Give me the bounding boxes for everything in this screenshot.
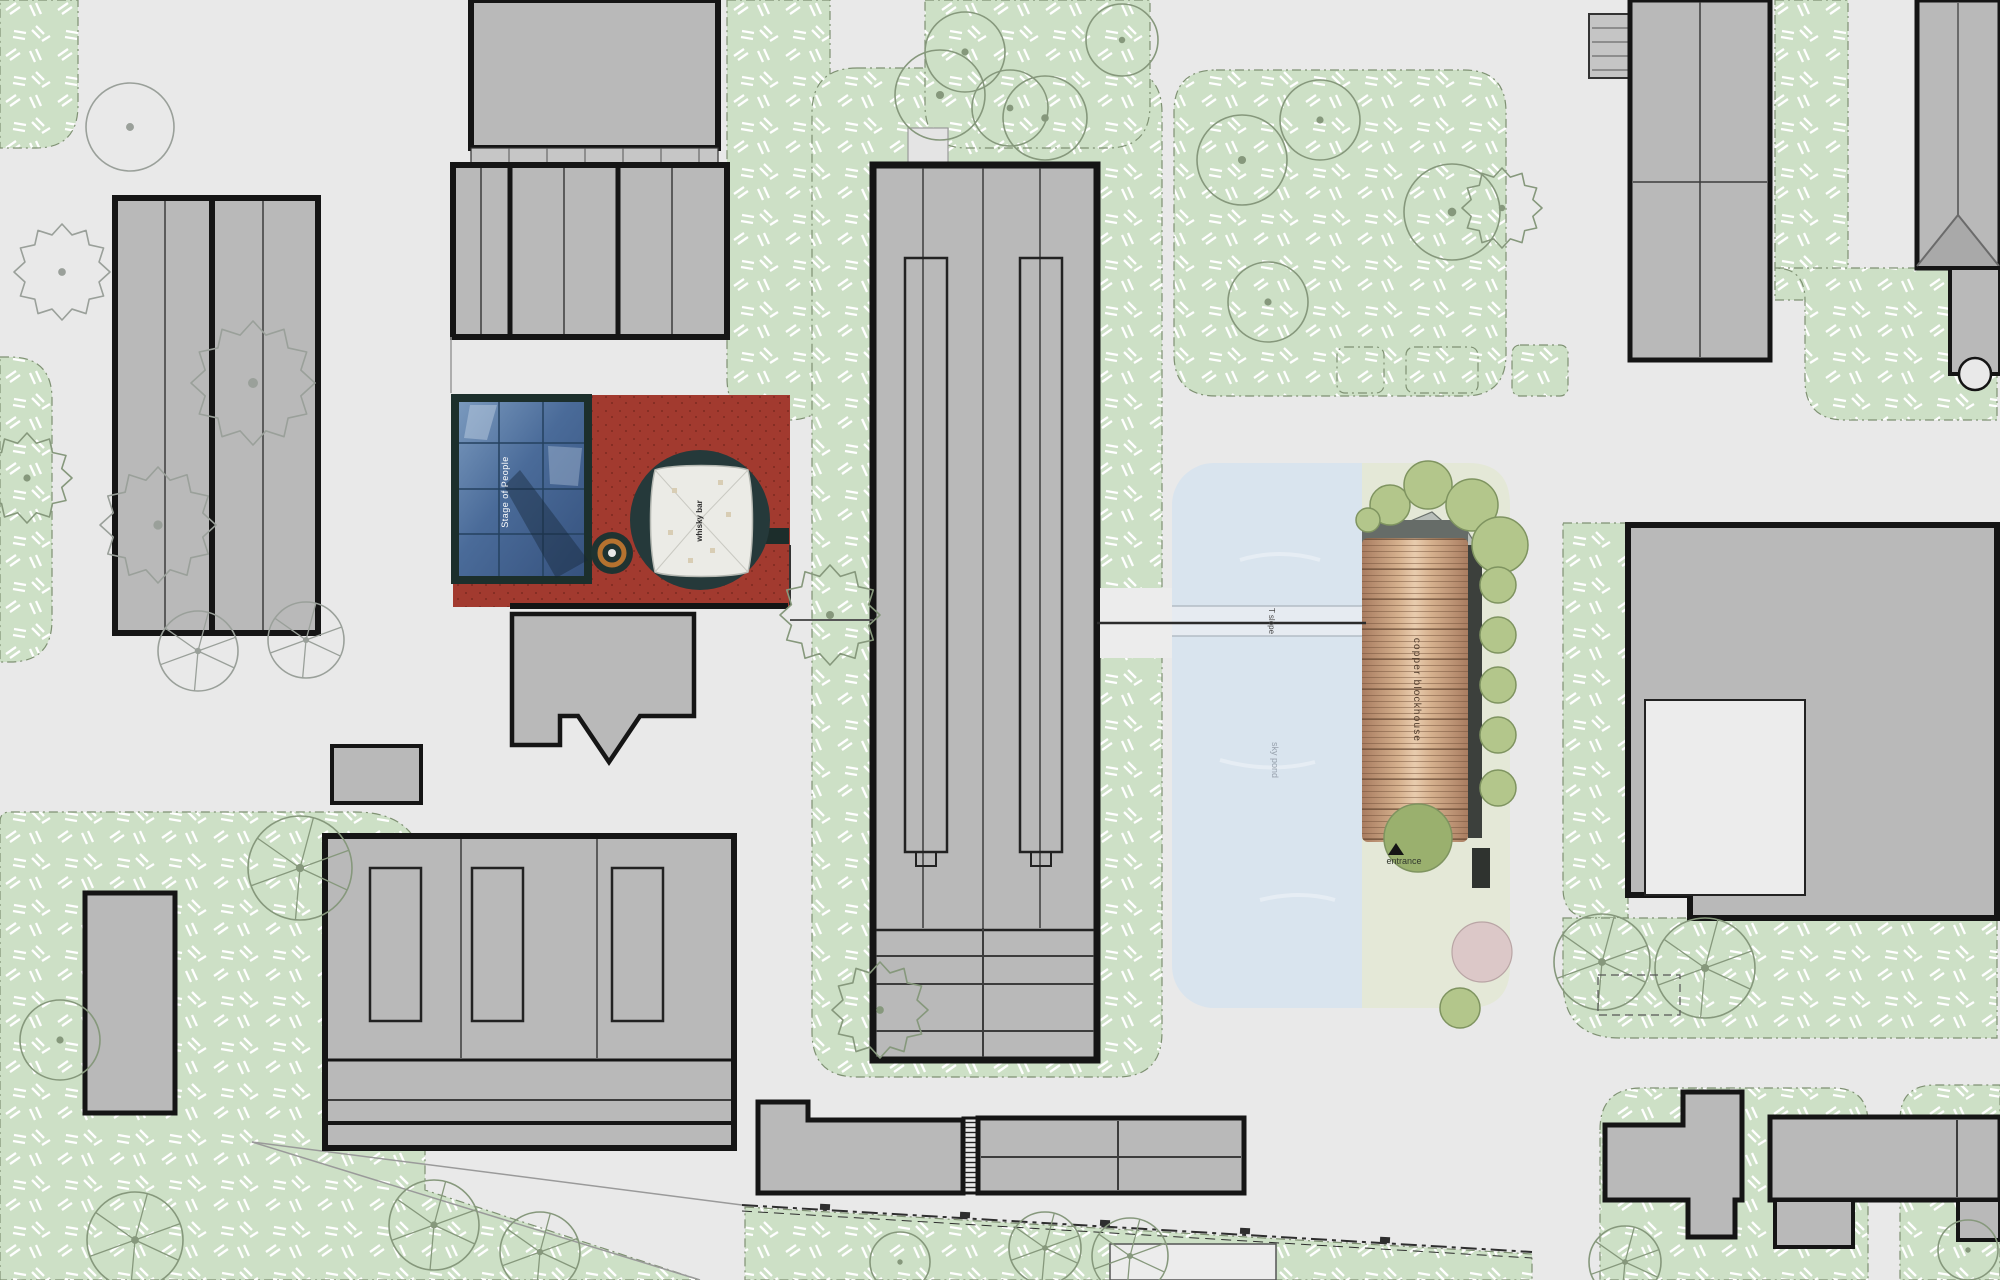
stage-label: Stage of People <box>500 456 510 528</box>
pink-tree <box>1452 922 1512 982</box>
building-lower-left <box>325 836 734 1148</box>
building-u-right <box>1628 525 1997 918</box>
grass-tile-3 <box>1512 345 1568 396</box>
structure-bottom-light <box>1110 1244 1276 1280</box>
building-green-left <box>85 893 175 1113</box>
grass-top-mid <box>925 0 1150 148</box>
target-sculpture <box>591 532 633 574</box>
grass-top-left <box>0 0 78 148</box>
stage-building: Stage of People <box>455 398 588 580</box>
whisky-bar-label: whisky bar <box>695 500 704 542</box>
grass-u-left <box>1563 523 1628 918</box>
entrance-label: entrance <box>1386 856 1421 866</box>
grass-left-strip <box>0 357 52 662</box>
grass-tile-2 <box>1406 347 1478 393</box>
site-plan: Stage of People whisky bar <box>0 0 2000 1280</box>
sky-pond-area <box>1172 461 1528 1028</box>
site-plan-svg: Stage of People whisky bar <box>0 0 2000 1280</box>
building-top-middle <box>453 0 727 337</box>
garden-bench <box>1472 848 1490 888</box>
grass-tile-1 <box>1337 347 1384 393</box>
grass-right-strip <box>1775 0 1848 300</box>
grass-u-below <box>1563 918 1997 1038</box>
copper-blockhouse-label: copper blockhouse <box>1411 638 1422 742</box>
building-top-left <box>115 198 318 633</box>
sky-pond-label: sky pond <box>1270 742 1280 778</box>
building-small-annex <box>332 746 421 803</box>
t-slope-label: T slope <box>1267 608 1276 635</box>
building-central-long <box>873 128 1097 1060</box>
whisky-bar-tent: whisky bar <box>630 450 770 590</box>
